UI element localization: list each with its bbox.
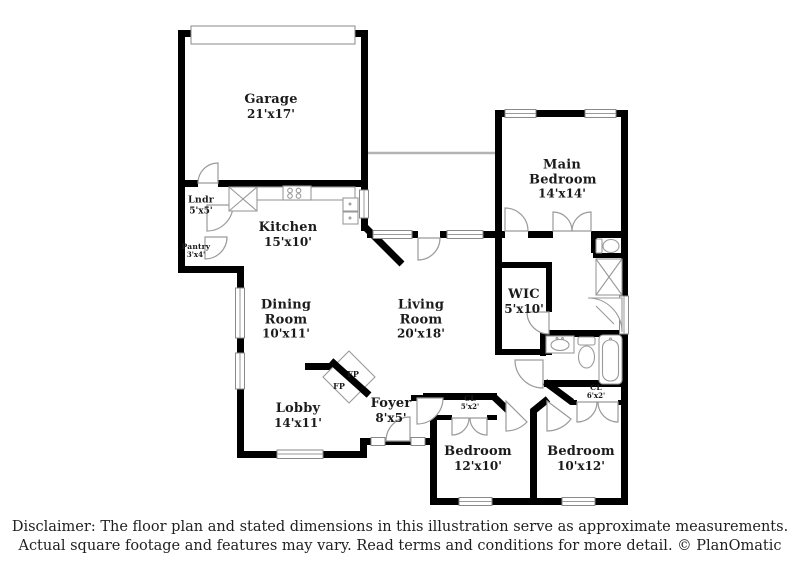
hallway-door (417, 398, 443, 424)
fireplace-label-1: FP (347, 369, 359, 379)
main-toilet (603, 240, 619, 253)
label-wic: WIC 5'x10' (504, 288, 544, 316)
floor-plan-drawing (0, 0, 800, 582)
main-bedroom-double-door-right (572, 212, 591, 231)
main-bedroom-door (505, 208, 528, 231)
label-bedroom-2: Bedroom 10'x12' (547, 445, 615, 473)
hall-toilet (579, 346, 595, 368)
bedroom-1-door (506, 401, 527, 431)
label-pantry: Pantry 3'x4' (182, 243, 211, 259)
floor-plan-page: Garage 21'x17' Lndr 5'x5' Kitchen 15'x10… (0, 0, 800, 582)
label-kitchen: Kitchen 15'x10' (259, 221, 318, 249)
label-bedroom-1: Bedroom 12'x10' (444, 445, 512, 473)
label-closet-2: CL 6'x2' (587, 384, 605, 400)
garage-door (191, 26, 355, 44)
closet-2-door-left (577, 402, 597, 422)
label-laundry: Lndr 5'x5' (188, 196, 214, 217)
closet-2-door-right (598, 402, 618, 422)
hall-toilet-tank (578, 337, 595, 345)
label-dining-room: Dining Room 10'x11' (253, 299, 319, 342)
closet-1-door-right (470, 418, 487, 435)
closet-1-door-left (452, 418, 469, 435)
hall-bath-door (515, 360, 543, 388)
label-foyer: Foyer 8'x5' (371, 397, 412, 425)
hall-bath-sink (551, 340, 569, 351)
living-room-patio-door (418, 238, 440, 260)
label-garage: Garage 21'x17' (244, 93, 297, 121)
main-bedroom-double-door-left (553, 212, 572, 231)
label-living-room: Living Room 20'x18' (388, 299, 454, 342)
fireplace-label-2: FP (333, 381, 345, 391)
garage-laundry-door (198, 163, 218, 183)
disclaimer-line-2: Actual square footage and features may v… (0, 537, 800, 555)
label-main-bedroom: Main Bedroom 14'x14' (529, 159, 595, 202)
bedroom-2-door (547, 401, 571, 431)
label-closet-1: CL 5'x2' (461, 395, 479, 411)
disclaimer-line-1: Disclaimer: The floor plan and stated di… (0, 518, 800, 536)
label-lobby: Lobby 14'x11' (274, 402, 322, 430)
main-toilet-tank (596, 239, 602, 253)
